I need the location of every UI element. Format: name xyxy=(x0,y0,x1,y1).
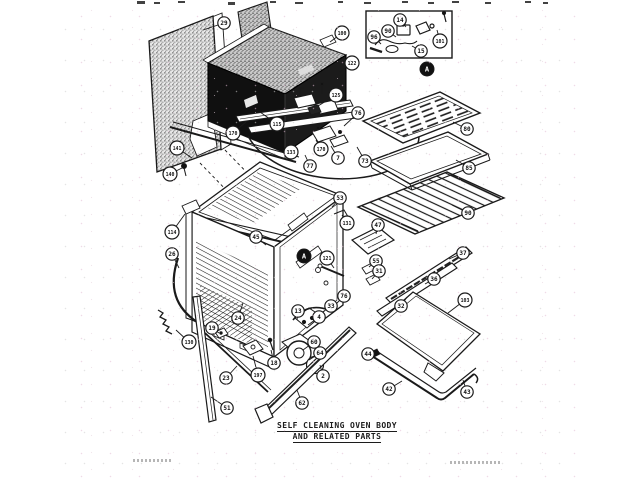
scan-artifacts xyxy=(137,1,548,5)
callout-label-121: 121 xyxy=(323,256,332,262)
callout-label-2: 2 xyxy=(321,373,325,380)
callout-label-60: 60 xyxy=(310,339,318,346)
callout-label-23: 23 xyxy=(222,375,230,382)
fine-print-left xyxy=(133,459,171,462)
callout-label-114: 114 xyxy=(168,230,177,236)
callout-label-51: 51 xyxy=(223,405,231,412)
callout-label-90: 90 xyxy=(384,28,392,35)
callout-label-32: 32 xyxy=(397,303,405,310)
callout-label-13: 13 xyxy=(294,308,302,315)
callout-label-36: 36 xyxy=(430,276,438,283)
callout-label-7: 7 xyxy=(336,155,340,162)
callout-label-115: 115 xyxy=(273,122,282,128)
callout-label-80: 80 xyxy=(463,126,471,133)
callout-label-100: 100 xyxy=(338,31,347,37)
callout-label-42: 42 xyxy=(385,386,393,393)
callout-label-125: 125 xyxy=(332,93,341,99)
callout-label-31: 31 xyxy=(375,268,383,275)
callout-label-77: 77 xyxy=(306,163,314,170)
callout-label-130: 130 xyxy=(185,340,194,346)
callout-label-76: 76 xyxy=(340,293,348,300)
fine-print-right xyxy=(450,461,500,464)
callout-label-37: 37 xyxy=(459,250,467,257)
callout-label-62: 62 xyxy=(298,400,306,407)
callout-label-53: 53 xyxy=(336,195,344,202)
callout-label-141: 141 xyxy=(173,146,182,152)
callout-label-96: 96 xyxy=(370,34,378,41)
callout-label-73: 73 xyxy=(361,158,369,165)
callout-label-24: 24 xyxy=(234,315,242,322)
callout-label-47: 47 xyxy=(374,222,382,229)
callout-label-64: 64 xyxy=(316,350,324,357)
callout-label-170: 170 xyxy=(229,131,238,137)
callout-label-18: 18 xyxy=(270,360,278,367)
callout-label-140: 140 xyxy=(166,172,175,178)
callout-label-43: 43 xyxy=(463,389,471,396)
spring-icon xyxy=(158,310,172,334)
callout-label-45: 45 xyxy=(252,234,260,241)
callout-label-76: 76 xyxy=(354,110,362,117)
callout-label-26: 26 xyxy=(168,251,176,258)
callout-label-133: 133 xyxy=(287,150,296,156)
exploded-parts-diagram: 2914110012212511517014014909610115761707… xyxy=(0,0,640,480)
callout-label-103: 103 xyxy=(461,298,470,304)
callout-label-33: 33 xyxy=(327,303,335,310)
callout-label-14: 14 xyxy=(396,17,404,24)
callout-label-122: 122 xyxy=(348,61,357,67)
callout-label-90: 90 xyxy=(464,210,472,217)
callout-label-55: 55 xyxy=(372,258,380,265)
callout-label-44: 44 xyxy=(364,351,372,358)
callout-label-170: 170 xyxy=(317,147,326,153)
callout-label-15: 15 xyxy=(417,48,425,55)
diagram-title-line2: AND RELATED PARTS xyxy=(293,432,382,443)
callout-label-19: 19 xyxy=(208,325,216,332)
callout-label-131: 131 xyxy=(343,221,352,227)
callout-label-101: 101 xyxy=(436,39,445,45)
broiler-grid xyxy=(363,92,480,143)
callout-label-29: 29 xyxy=(220,20,228,27)
callout-label-197: 197 xyxy=(254,373,263,379)
callout-label-4: 4 xyxy=(317,314,321,321)
diagram-title: SELF CLEANING OVEN BODY AND RELATED PART… xyxy=(277,421,397,443)
callout-label-85: 85 xyxy=(465,165,473,172)
diagram-title-line1: SELF CLEANING OVEN BODY xyxy=(277,421,397,432)
parts-diagram-page: 2914110012212511517014014909610115761707… xyxy=(0,0,640,480)
